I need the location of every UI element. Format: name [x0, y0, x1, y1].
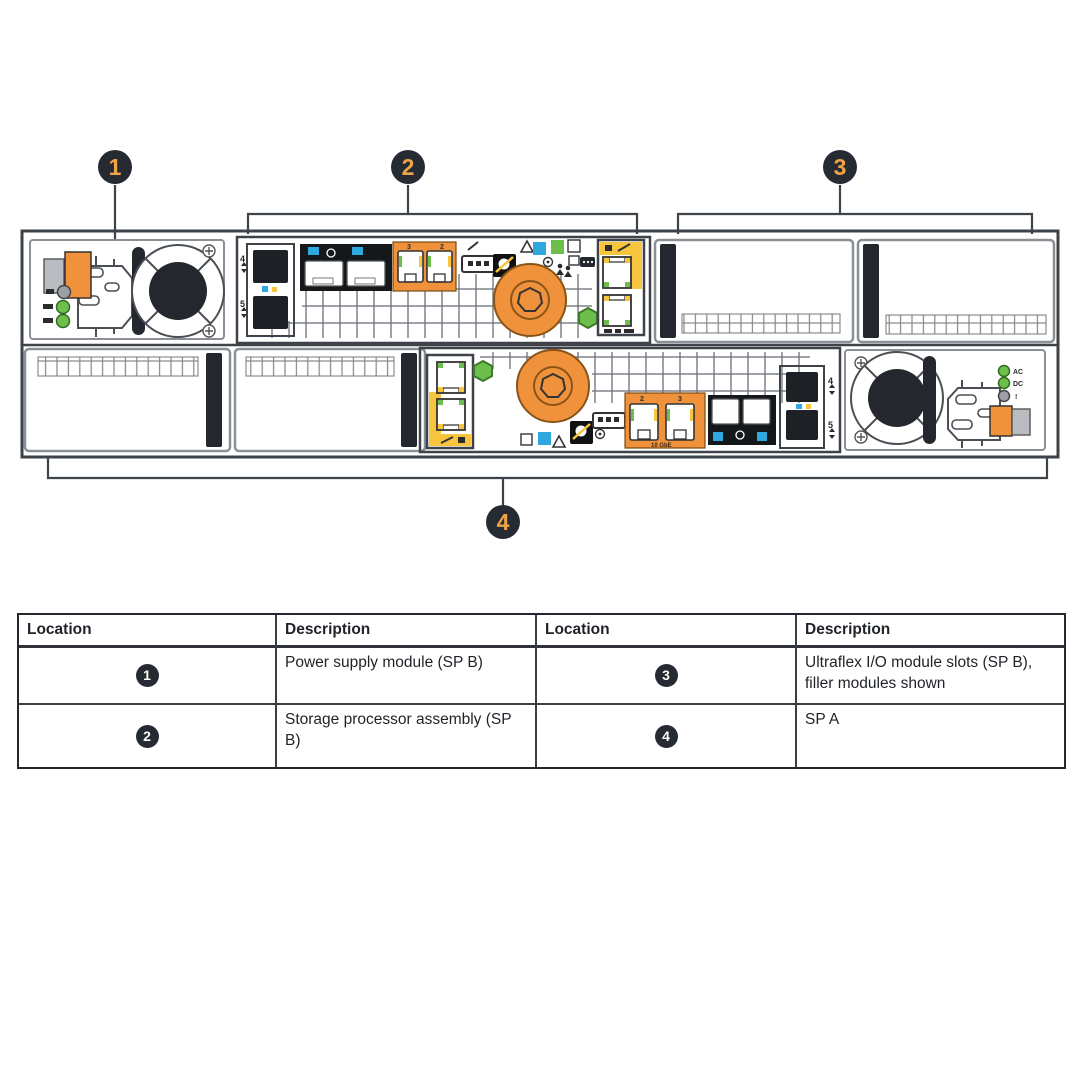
spb-locking-knob [494, 264, 566, 336]
location-badge-4: 4 [655, 725, 678, 748]
psu-b-led-ac [57, 301, 70, 314]
spa-locking-knob [517, 350, 589, 422]
row1-location-1: 1 [19, 648, 277, 705]
svg-text:1: 1 [109, 154, 122, 180]
spb-sfp-cages [247, 244, 294, 336]
spb-ethernet-panel: 3 2 [393, 242, 456, 291]
mute-icon [570, 421, 593, 444]
blue-led-mark [533, 242, 546, 255]
psu-b-led-dc [57, 315, 70, 328]
header-description-1: Description [277, 615, 537, 648]
svg-text:4: 4 [497, 509, 510, 535]
row2-location-2: 4 [537, 705, 797, 767]
row1-description-2: Ultraflex I/O module slots (SP B), fille… [797, 648, 1064, 705]
callout-1: 1 [98, 150, 132, 184]
svg-text:3: 3 [834, 154, 847, 180]
psu-a-latch [990, 406, 1012, 436]
filler-module-bottom-1 [25, 349, 230, 451]
gear-icon [596, 430, 605, 439]
spb-mgmt-ports [598, 240, 644, 335]
spa-mgmt-ports [427, 355, 473, 448]
psu-b-fan [132, 245, 224, 337]
psu-a-led-ac [999, 366, 1010, 377]
svg-text:AC: AC [1013, 369, 1023, 376]
location-badge-3: 3 [655, 664, 678, 687]
location-badge-2: 2 [136, 725, 159, 748]
warning-icon [553, 436, 565, 447]
svg-text:!: ! [1015, 394, 1017, 401]
green-led-mark [551, 240, 564, 254]
header-location-1: Location [19, 615, 277, 648]
psu-a-led-fault [999, 391, 1010, 402]
row1-location-2: 3 [537, 648, 797, 705]
spa-sfp-panel [708, 395, 776, 445]
spa-sfp-cages [780, 366, 824, 448]
svg-text:2: 2 [402, 154, 415, 180]
row2-description-1: Storage processor assembly (SP B) [277, 705, 537, 767]
filler-module-top-2 [858, 240, 1054, 342]
header-location-2: Location [537, 615, 797, 648]
header-description-2: Description [797, 615, 1064, 648]
rear-view-diagram: 1 2 3 4 [0, 0, 1080, 580]
filler-module-bottom-2 [235, 349, 425, 451]
psu-a-led-dc [999, 378, 1010, 389]
psu-a-handle [923, 356, 936, 444]
psu-b-led-fault [58, 286, 71, 299]
svg-text:10 GbE: 10 GbE [651, 443, 672, 449]
row2-description-2: SP A [797, 705, 1064, 767]
filler-module-top-1 [655, 240, 853, 342]
warning-icon [521, 241, 533, 252]
callout-3: 3 [823, 150, 857, 184]
spb-sfp-panel [300, 244, 392, 291]
power-supply-spb [30, 240, 224, 339]
svg-text:2: 2 [640, 396, 644, 403]
row2-location-1: 2 [19, 705, 277, 767]
svg-text:3: 3 [678, 396, 682, 403]
sp-a-assembly: 2 3 10 GbE 4 [420, 348, 840, 452]
page: 1 2 3 4 [0, 0, 1080, 1080]
location-badge-1: 1 [136, 664, 159, 687]
legend-table: Location Description Location Descriptio… [17, 613, 1066, 769]
svg-text:2: 2 [440, 244, 444, 251]
wrench-icon [468, 242, 478, 250]
callout-2: 2 [391, 150, 425, 184]
callout-4: 4 [486, 505, 520, 539]
vent-icon [580, 257, 595, 267]
power-supply-spa: AC DC ! [845, 350, 1045, 450]
svg-text:3: 3 [407, 244, 411, 251]
spa-ethernet-panel: 2 3 10 GbE [625, 393, 705, 449]
row1-description-1: Power supply module (SP B) [277, 648, 537, 705]
spa-release-button [474, 361, 492, 381]
sp-b-assembly: 4 5 3 2 [237, 237, 650, 343]
gear-icon [544, 258, 553, 267]
spb-release-button [579, 308, 597, 328]
psu-a-plug-clip [1012, 409, 1030, 435]
svg-text:DC: DC [1013, 381, 1023, 388]
